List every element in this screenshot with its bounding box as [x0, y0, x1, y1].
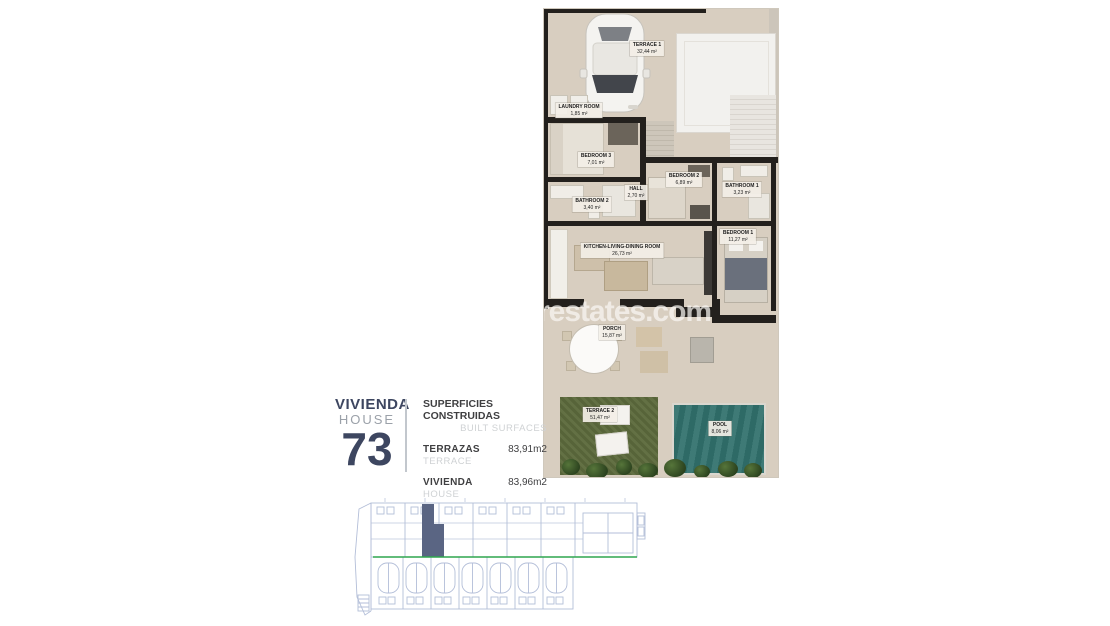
car-icon — [578, 11, 652, 115]
divider — [405, 399, 407, 472]
row-label-es: VIVIENDA — [423, 477, 473, 488]
wall — [712, 161, 717, 226]
watermark: restates.com — [543, 295, 711, 329]
bed-icon — [550, 123, 604, 175]
room-label-bathroom-1: BATHROOM 13,23 m² — [722, 182, 761, 197]
wall — [640, 157, 779, 163]
wall — [544, 9, 548, 309]
room-label-terrace-1: TERRACE 132,44 m² — [630, 41, 664, 56]
dining-table-icon — [604, 261, 648, 291]
room-label-terrace-2: TERRACE 251,47 m² — [583, 407, 617, 422]
chair-icon — [562, 331, 572, 341]
unit-block: VIVIENDA HOUSE 73 — [335, 396, 399, 472]
plant-icon — [664, 459, 686, 477]
plant-icon — [744, 463, 762, 478]
sofa-icon — [652, 257, 704, 285]
stairs-icon — [730, 95, 776, 157]
room-label-bathroom-2: BATHROOM 23,40 m² — [572, 197, 611, 212]
room-label-bedroom-2: BEDROOM 26,89 m² — [666, 172, 702, 187]
rug-icon — [640, 351, 668, 373]
room-label-pool: POOL8,06 m² — [709, 421, 732, 436]
wall — [544, 221, 646, 226]
sun-lounger-icon — [595, 431, 629, 456]
siteplan-highlighted-unit — [422, 504, 444, 557]
wall — [771, 157, 776, 311]
room-label-porch: PORCH15,87 m² — [599, 325, 625, 340]
wall — [544, 9, 706, 13]
toilet-icon — [722, 167, 734, 181]
plant-icon — [694, 465, 710, 478]
row-label-es: TERRAZAS — [423, 444, 480, 455]
lounge-chair-icon — [690, 337, 714, 363]
plant-icon — [586, 463, 608, 478]
entry-steps-icon — [644, 121, 674, 159]
room-label-bedroom-1: BEDROOM 111,27 m² — [720, 229, 756, 244]
vanity-icon — [740, 165, 768, 177]
wall — [640, 117, 646, 226]
surfaces-table: SUPERFICIES CONSTRUIDAS BUILT SURFACES T… — [423, 398, 547, 500]
plant-icon — [638, 463, 658, 478]
floor-plan: restates.com TERRACE 132,44 m² LAUNDRY R… — [543, 8, 779, 478]
tv-unit-icon — [704, 231, 712, 295]
room-label-kitchen-living-dining: KITCHEN-LIVING-DINING ROOM26,73 m² — [581, 243, 664, 258]
page: restates.com TERRACE 132,44 m² LAUNDRY R… — [0, 0, 1110, 626]
row-value: 83,91m2 — [508, 444, 547, 455]
unit-number: 73 — [335, 428, 399, 472]
plant-icon — [718, 461, 738, 477]
kitchen-counter-icon — [550, 229, 568, 299]
plant-icon — [616, 459, 632, 475]
wardrobe-icon — [608, 123, 638, 145]
wall — [712, 315, 776, 323]
wall — [640, 221, 776, 226]
surfaces-title-es: SUPERFICIES CONSTRUIDAS — [423, 398, 547, 422]
rug-icon — [636, 327, 662, 347]
unit-label-es: VIVIENDA — [335, 396, 399, 413]
room-label-bedroom-3: BEDROOM 37,01 m² — [578, 152, 614, 167]
bed-icon — [724, 237, 768, 303]
siteplan — [345, 497, 647, 625]
wall — [544, 177, 644, 182]
row-value: 83,96m2 — [508, 477, 547, 488]
plant-icon — [562, 459, 580, 475]
room-label-laundry-room: LAUNDRY ROOM1,85 m² — [555, 103, 602, 118]
room-label-hall: HALL2,70 m² — [625, 185, 648, 200]
surfaces-title-en: BUILT SURFACES — [423, 423, 547, 434]
row-label-en: TERRACE — [423, 456, 547, 467]
dresser-icon — [690, 205, 710, 219]
surfaces-row-terrace: TERRAZAS 83,91m2 TERRACE — [423, 444, 547, 467]
